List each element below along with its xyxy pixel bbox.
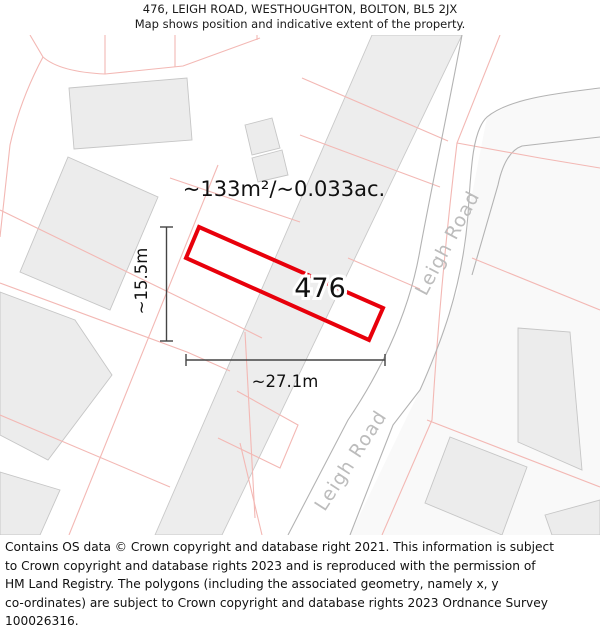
height-dimension-label: ~15.5m <box>132 248 151 315</box>
property-address-title: 476, LEIGH ROAD, WESTHOUGHTON, BOLTON, B… <box>0 0 600 16</box>
area-label: ~133m²/~0.033ac. <box>183 177 385 201</box>
footer-line: HM Land Registry. The polygons (includin… <box>5 575 599 594</box>
footer-line: 100026316. <box>5 612 599 631</box>
map-canvas: Leigh Road Leigh Road ~133m²/~0.033ac. 4… <box>0 35 600 535</box>
height-dimension-line <box>160 227 173 341</box>
footer-line: Contains OS data © Crown copyright and d… <box>5 538 599 557</box>
building <box>0 472 60 535</box>
footer-line: co-ordinates) are subject to Crown copyr… <box>5 594 599 613</box>
width-dimension-label: ~27.1m <box>252 372 319 391</box>
footer-line: to Crown copyright and database rights 2… <box>5 557 599 576</box>
building <box>0 292 112 460</box>
map-description-subtitle: Map shows position and indicative extent… <box>0 16 600 31</box>
building <box>69 78 192 149</box>
copyright-footer: Contains OS data © Crown copyright and d… <box>0 535 599 628</box>
building <box>245 118 280 155</box>
map-svg: Leigh Road Leigh Road ~133m²/~0.033ac. 4… <box>0 35 600 535</box>
plot-number-label: 476 <box>294 273 346 304</box>
report-header: 476, LEIGH ROAD, WESTHOUGHTON, BOLTON, B… <box>0 0 600 35</box>
